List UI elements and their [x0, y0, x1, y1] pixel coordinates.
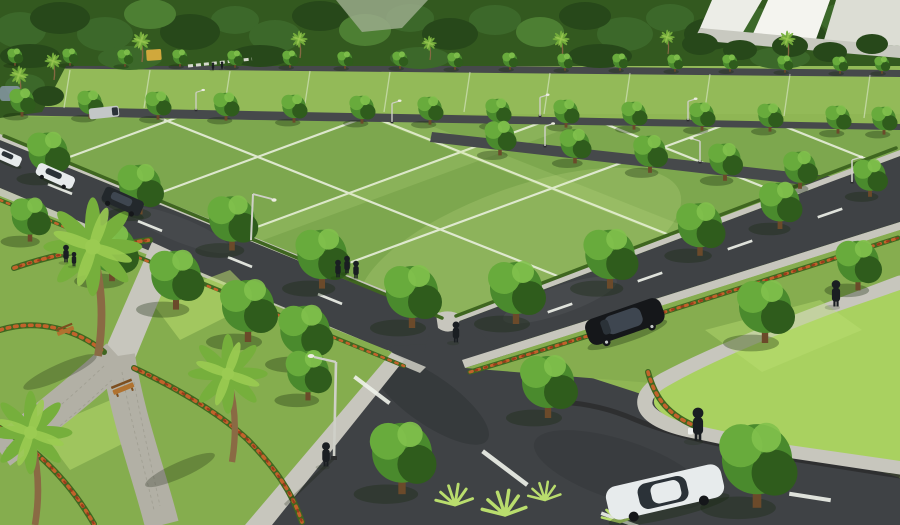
- plotted-development-scene: [0, 0, 900, 525]
- play-structure: [146, 49, 162, 61]
- render-canvas: [0, 0, 900, 525]
